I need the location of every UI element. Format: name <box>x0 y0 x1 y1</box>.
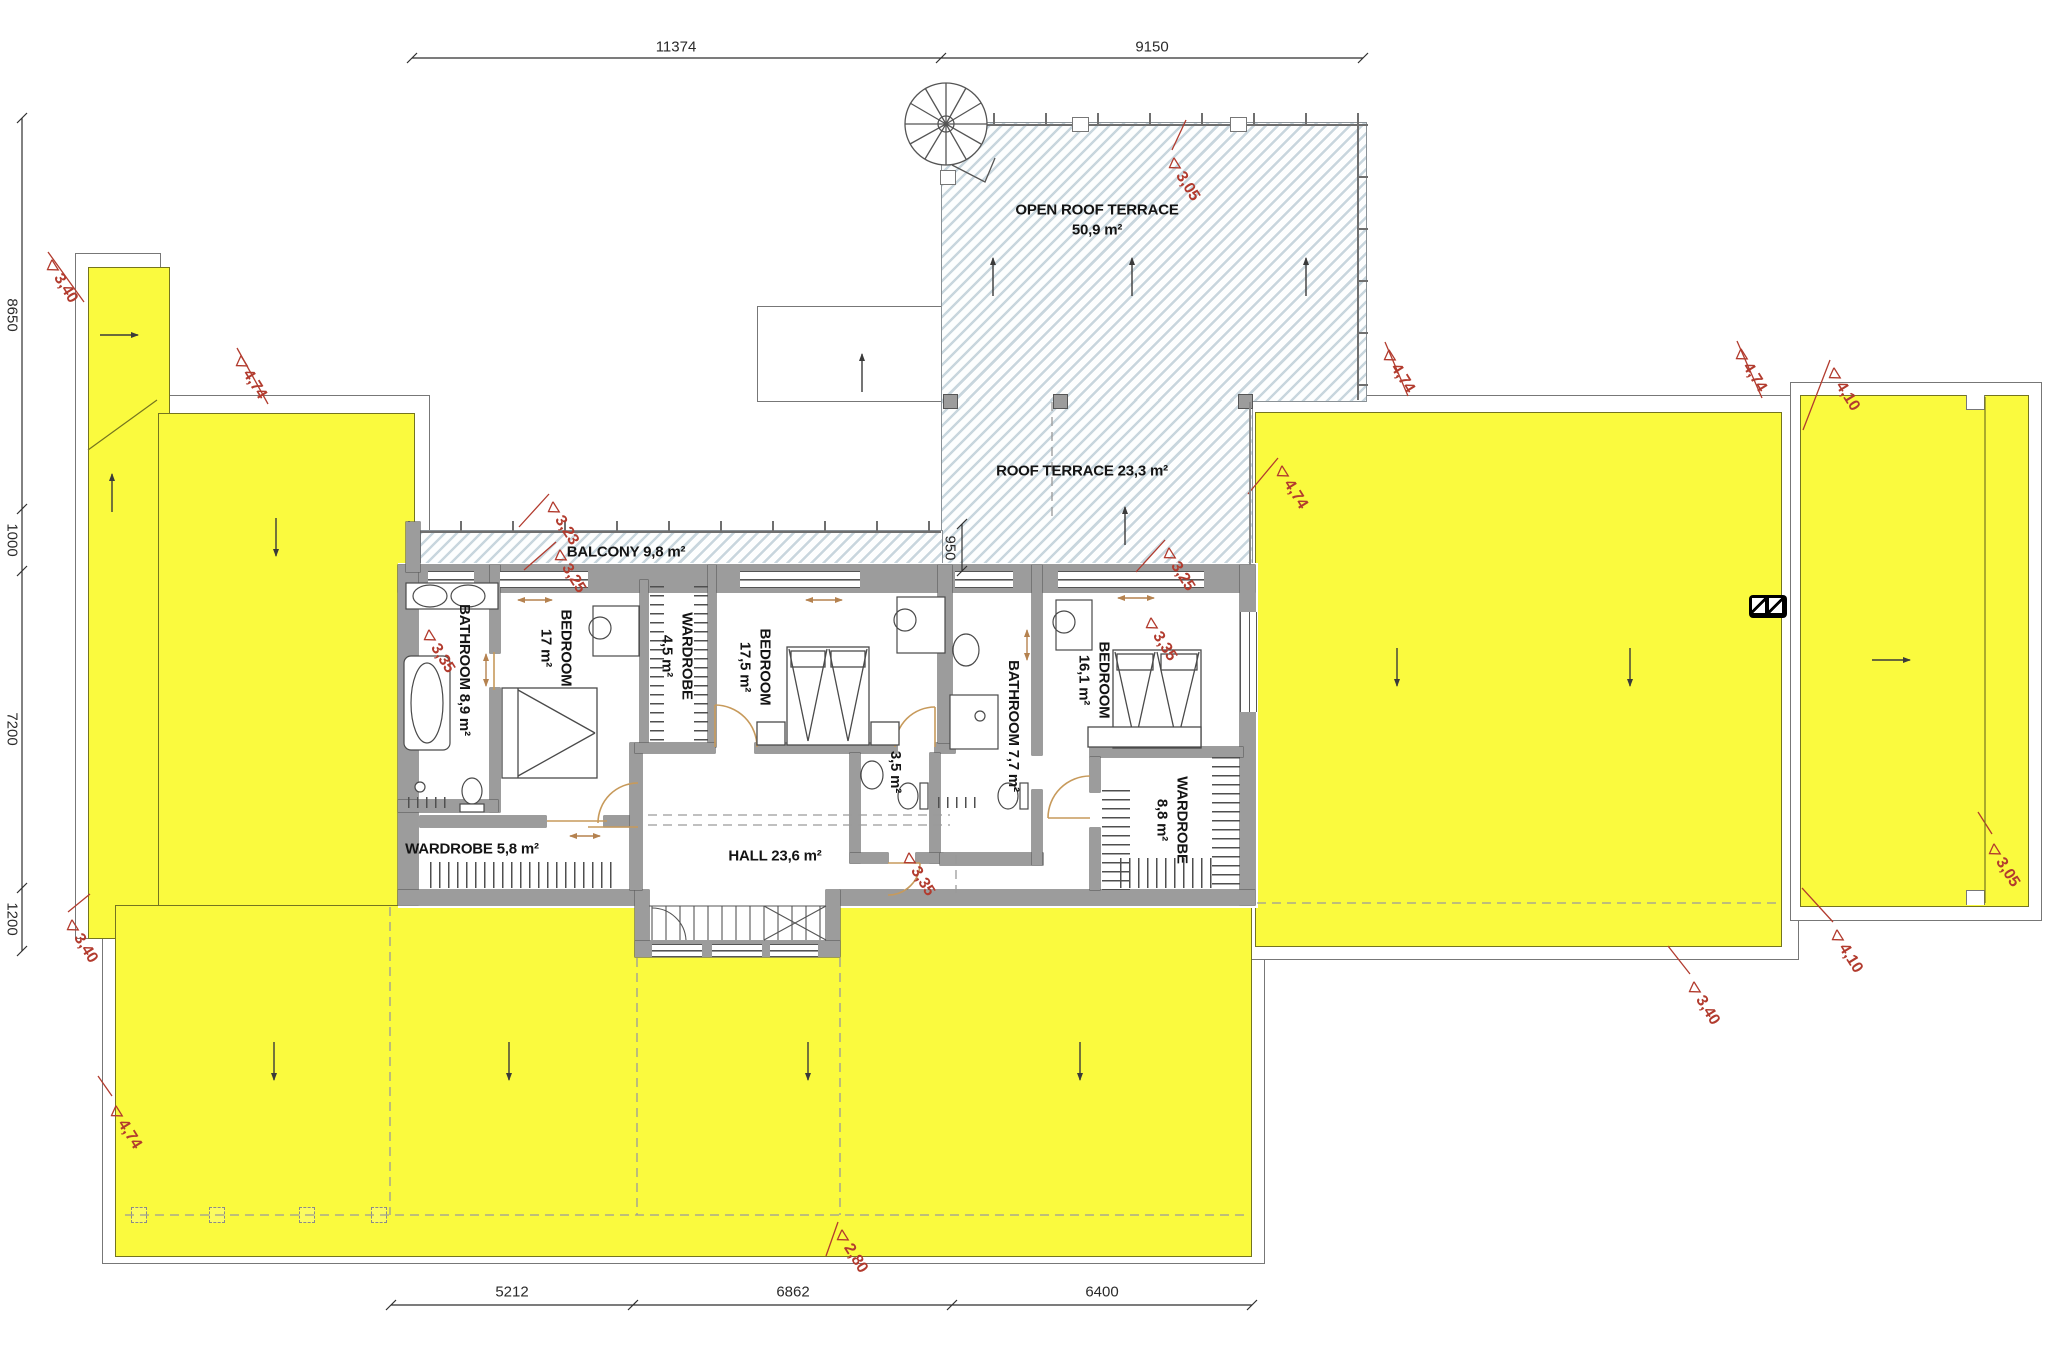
dim-top-2: 9150 <box>1135 39 1168 56</box>
room-label-bedroom-3: BEDROOM16,1 m² <box>1075 642 1114 719</box>
room-label-wardrobe-3: WARDROBE 5,8 m² <box>405 839 539 859</box>
room-label-bedroom-2: BEDROOM17,5 m² <box>736 629 775 706</box>
dim-left-4: 1200 <box>4 902 21 935</box>
room-label-balcony: BALCONY 9,8 m² <box>567 542 686 562</box>
floor-plan-canvas: OPEN ROOF TERRACE50,9 m² ROOF TERRACE 23… <box>0 0 2048 1347</box>
room-label-roof-terrace: ROOF TERRACE 23,3 m² <box>996 461 1168 481</box>
room-label-wardrobe-1: WARDROBE4,5 m² <box>658 612 697 700</box>
room-label-open-roof-terrace: OPEN ROOF TERRACE50,9 m² <box>1015 201 1178 240</box>
room-label-bathroom-2: BATHROOM 7,7 m² <box>1003 660 1023 792</box>
room-label-wc: 3,5 m² <box>885 751 905 793</box>
dim-left-2: 1000 <box>4 523 21 556</box>
dim-bottom-2: 6862 <box>776 1284 809 1301</box>
room-label-bathroom-1: BATHROOM 8,9 m² <box>454 604 474 736</box>
dim-left-3: 7200 <box>4 712 21 745</box>
dim-top-1: 11374 <box>656 39 697 56</box>
room-label-bedroom-1: BEDROOM17 m² <box>537 610 576 687</box>
dim-inner-950: 950 <box>942 535 959 560</box>
dim-bottom-1: 5212 <box>495 1284 528 1301</box>
dim-left-1: 8650 <box>4 298 21 331</box>
room-label-hall: HALL 23,6 m² <box>728 846 821 866</box>
dim-bottom-3: 6400 <box>1085 1284 1118 1301</box>
room-label-wardrobe-2: WARDROBE8,8 m² <box>1153 776 1192 864</box>
